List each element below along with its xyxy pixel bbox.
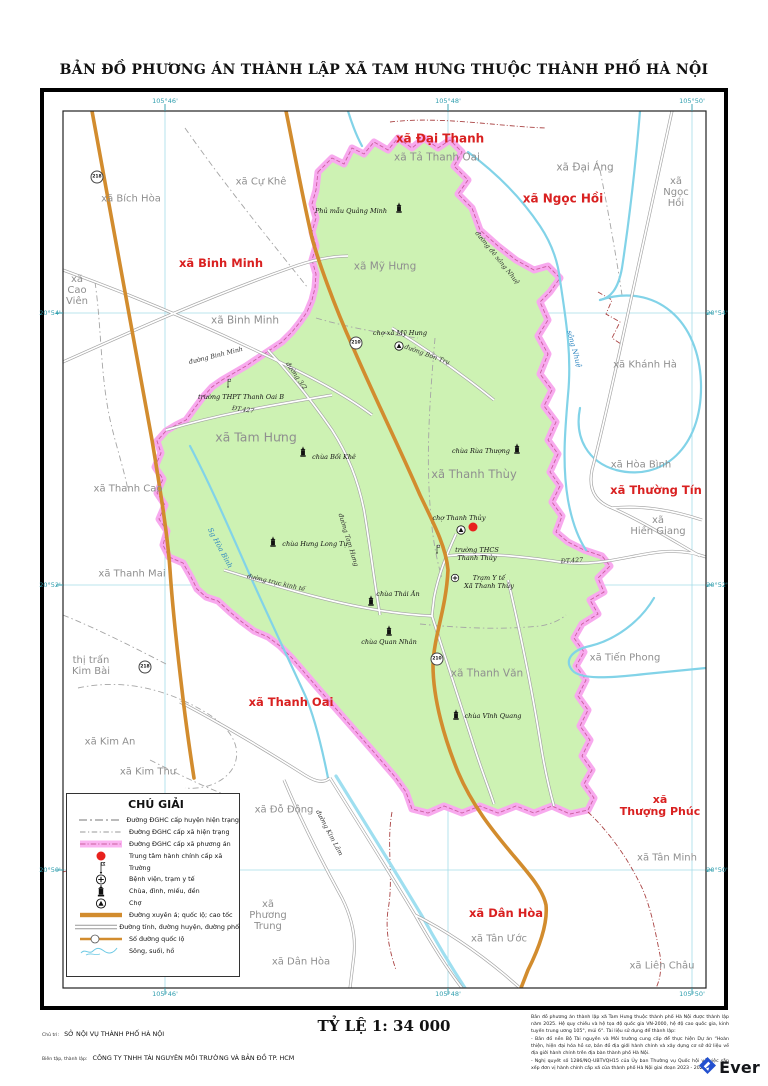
- legend-item: Đường ĐGHC cấp xã phương án: [73, 838, 239, 850]
- legend-item: Bệnh viện, trạm y tế: [73, 873, 239, 885]
- red_dot-symbol: [73, 850, 129, 862]
- legend-item: Trung tâm hành chính cấp xã: [73, 850, 239, 862]
- legend-title: CHÚ GIẢI: [73, 798, 239, 811]
- temple-symbol: [73, 885, 129, 897]
- legend-item: Số đường quốc lộ: [73, 933, 239, 945]
- commune-polygon: [155, 138, 610, 814]
- map-page: BẢN ĐỒ PHƯƠNG ÁN THÀNH LẬP XÃ TAM HƯNG T…: [0, 0, 768, 1086]
- legend-item: Đường tỉnh, đường huyện, đường phố: [73, 921, 239, 933]
- legend-item-label: Chùa, đình, miếu, đền: [129, 887, 200, 895]
- legend-item: Đường ĐGHC cấp huyện hiện trạng: [73, 814, 239, 826]
- legend-item: Trường: [73, 862, 239, 874]
- credit-role-2: Biên tập, thành lập:: [42, 1057, 87, 1062]
- ever-logo-text: Ever: [719, 1058, 760, 1077]
- legend-item-label: Chợ: [129, 899, 141, 907]
- legend-item-label: Đường xuyên á; quốc lộ; cao tốc: [129, 911, 233, 919]
- legend-item: Sông, suối, hồ: [73, 945, 239, 957]
- ever-logo-icon: [699, 1057, 716, 1078]
- legend-item-label: Đường ĐGHC cấp xã hiện trạng: [129, 828, 230, 836]
- note-paragraph: - Bản đồ nền Bộ Tài nguyên và Môi trường…: [531, 1037, 729, 1057]
- legend-item-label: Số đường quốc lộ: [129, 935, 184, 943]
- huyen_line-symbol: [73, 814, 126, 826]
- legend-item: Đường xuyên á; quốc lộ; cao tốc: [73, 909, 239, 921]
- market-symbol: [73, 898, 129, 909]
- legend-item-label: Đường ĐGHC cấp huyện hiện trạng: [126, 816, 239, 824]
- note-paragraph: Bản đồ phương án thành lập xã Tam Hưng t…: [531, 1015, 729, 1035]
- legend: CHÚ GIẢI Đường ĐGHC cấp huyện hiện trạng…: [66, 793, 240, 977]
- legend-item-label: Trường: [129, 864, 151, 872]
- ever-logo: Ever: [699, 1057, 760, 1078]
- legend-item: Chợ: [73, 897, 239, 909]
- school-symbol: [73, 861, 129, 874]
- legend-item: Chùa, đình, miếu, đền: [73, 885, 239, 897]
- highway-symbol: [73, 909, 129, 921]
- road-symbol: [73, 921, 119, 933]
- legend-item-label: Trung tâm hành chính cấp xã: [129, 852, 222, 860]
- river-symbol: [73, 945, 129, 957]
- legend-item-label: Sông, suối, hồ: [129, 947, 174, 955]
- credit-org-2: CÔNG TY TNHH TÀI NGUYÊN MÔI TRƯỜNG VÀ BẢ…: [93, 1054, 295, 1062]
- health-symbol: [73, 874, 129, 885]
- legend-item-label: Đường ĐGHC cấp xã phương án: [129, 840, 231, 848]
- legend-rows: Đường ĐGHC cấp huyện hiện trạngĐường ĐGH…: [73, 814, 239, 957]
- xa_line-symbol: [73, 826, 129, 838]
- route_num-symbol: [73, 933, 129, 945]
- legend-item-label: Bệnh viện, trạm y tế: [129, 875, 195, 883]
- legend-item-label: Đường tỉnh, đường huyện, đường phố: [119, 923, 239, 931]
- pink_band-symbol: [73, 838, 129, 850]
- legend-item: Đường ĐGHC cấp xã hiện trạng: [73, 826, 239, 838]
